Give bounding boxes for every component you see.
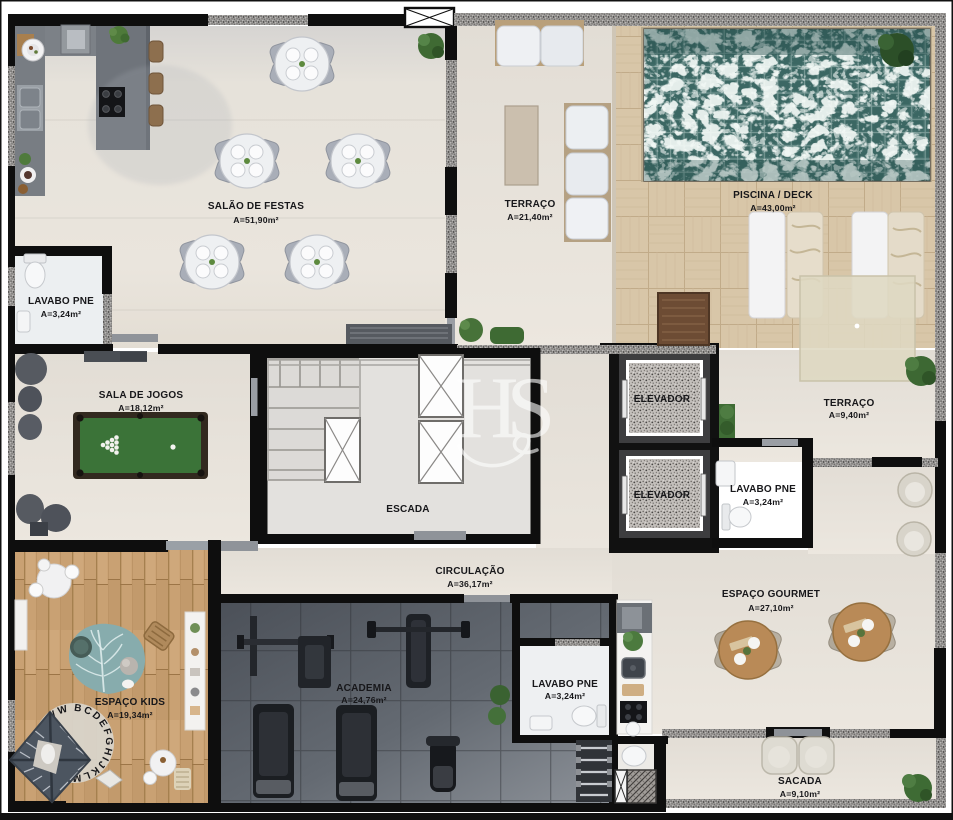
svg-text:A=3,24m²: A=3,24m² [545,691,585,701]
svg-text:A=24,76m²: A=24,76m² [341,695,387,705]
svg-text:TERRAÇO: TERRAÇO [505,199,556,210]
svg-text:A=18,12m²: A=18,12m² [118,403,164,413]
svg-text:A=9,10m²: A=9,10m² [780,789,820,799]
svg-text:SALA DE JOGOS: SALA DE JOGOS [99,390,184,401]
svg-text:LAVABO PNE: LAVABO PNE [532,679,598,690]
svg-text:ESCADA: ESCADA [386,504,429,515]
svg-text:SALÃO DE FESTAS: SALÃO DE FESTAS [208,199,304,212]
svg-text:ESPAÇO KIDS: ESPAÇO KIDS [95,697,165,708]
svg-text:SACADA: SACADA [778,776,822,787]
svg-text:A=43,00m²: A=43,00m² [750,203,796,213]
svg-text:A=21,40m²: A=21,40m² [507,212,553,222]
svg-text:ACADEMIA: ACADEMIA [336,683,392,694]
svg-text:ELEVADOR: ELEVADOR [634,394,691,405]
svg-text:CIRCULAÇÃO: CIRCULAÇÃO [435,564,504,577]
svg-text:LAVABO PNE: LAVABO PNE [28,296,94,307]
svg-text:A=51,90m²: A=51,90m² [233,215,279,225]
svg-text:A=19,34m²: A=19,34m² [107,710,153,720]
svg-text:LAVABO PNE: LAVABO PNE [730,484,796,495]
svg-text:PISCINA / DECK: PISCINA / DECK [733,190,813,201]
svg-text:A=36,17m²: A=36,17m² [447,579,493,589]
svg-text:ELEVADOR: ELEVADOR [634,490,691,501]
svg-text:TERRAÇO: TERRAÇO [824,398,875,409]
svg-text:A=27,10m²: A=27,10m² [748,603,794,613]
svg-text:ESPAÇO GOURMET: ESPAÇO GOURMET [722,589,820,600]
svg-text:A=9,40m²: A=9,40m² [829,410,869,420]
svg-text:A=3,24m²: A=3,24m² [743,497,783,507]
svg-text:A=3,24m²: A=3,24m² [41,309,81,319]
svg-text:HS: HS [455,360,551,457]
